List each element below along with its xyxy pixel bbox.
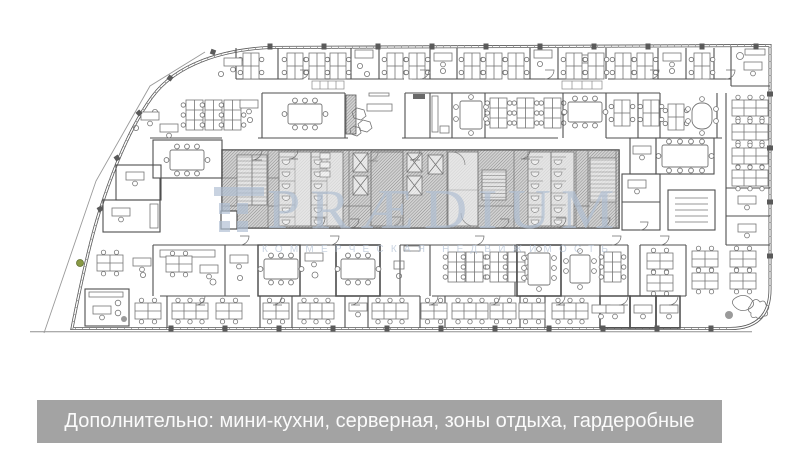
svg-text:PRÆDIUM: PRÆDIUM (267, 178, 624, 241)
svg-text:КОММЕРЧЕСКАЯ НЕДВИЖИМОСТЬ: КОММЕРЧЕСКАЯ НЕДВИЖИМОСТЬ (262, 244, 615, 255)
